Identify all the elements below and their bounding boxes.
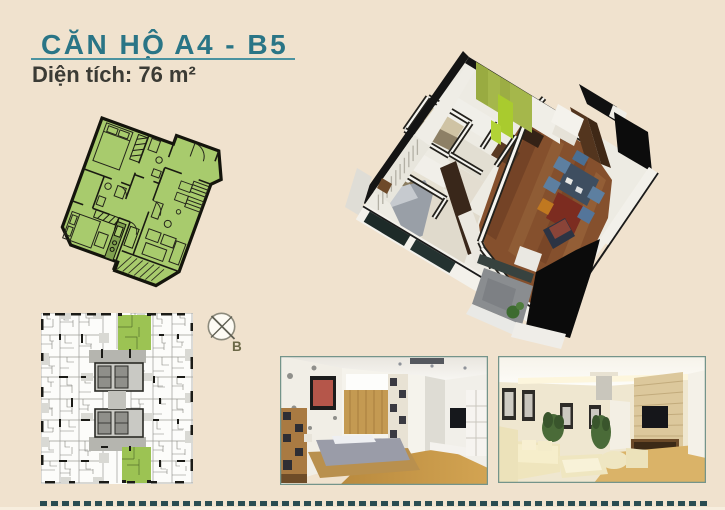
svg-text:B: B xyxy=(232,339,242,354)
